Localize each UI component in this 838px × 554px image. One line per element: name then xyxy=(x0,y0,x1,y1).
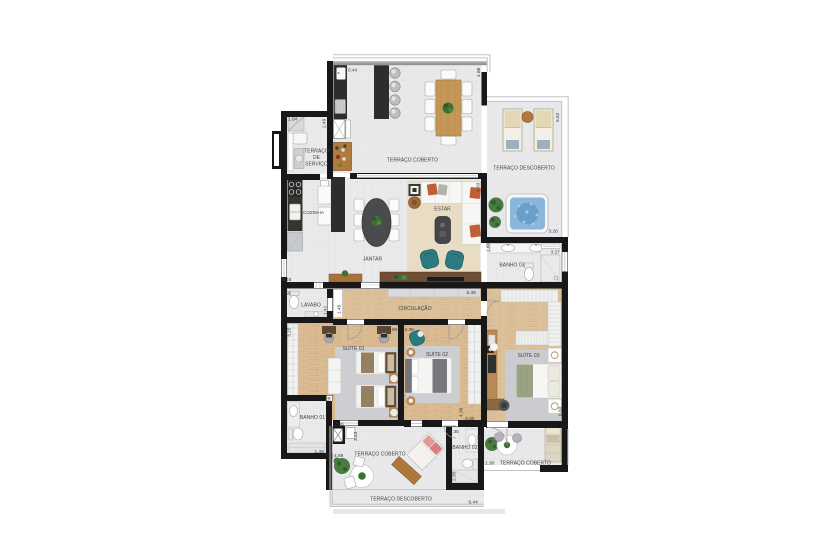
svg-text:CIRCULAÇÃO: CIRCULAÇÃO xyxy=(398,305,431,312)
svg-text:JANTAR: JANTAR xyxy=(363,257,383,263)
svg-text:BANHO 03: BANHO 03 xyxy=(499,263,524,269)
svg-text:6.60: 6.60 xyxy=(558,406,564,416)
svg-text:3.23: 3.23 xyxy=(353,431,359,441)
svg-text:1.45: 1.45 xyxy=(337,304,343,314)
svg-text:1.84: 1.84 xyxy=(288,117,298,123)
svg-text:4.88: 4.88 xyxy=(334,453,344,459)
svg-text:COZINHA: COZINHA xyxy=(303,210,325,215)
svg-text:BANHO 01: BANHO 01 xyxy=(300,415,325,421)
svg-text:TERRAÇO: TERRAÇO xyxy=(304,149,329,155)
svg-text:SERVIÇO: SERVIÇO xyxy=(305,162,328,168)
svg-text:SUÍTE 03: SUÍTE 03 xyxy=(517,352,539,359)
svg-text:SUÍTE 02: SUÍTE 02 xyxy=(426,351,448,358)
svg-text:2.96: 2.96 xyxy=(335,422,345,428)
svg-text:1.92: 1.92 xyxy=(282,291,292,297)
svg-text:1.41: 1.41 xyxy=(323,305,329,315)
svg-text:4.90: 4.90 xyxy=(388,327,398,333)
svg-text:4.88: 4.88 xyxy=(476,67,482,77)
svg-text:2.88: 2.88 xyxy=(327,396,333,406)
svg-text:TERRAÇO COBERTO: TERRAÇO COBERTO xyxy=(500,461,551,467)
svg-text:0.44: 0.44 xyxy=(348,68,358,74)
svg-text:TERRAÇO DESCOBERTO: TERRAÇO DESCOBERTO xyxy=(493,166,555,172)
svg-text:2.30: 2.30 xyxy=(452,471,458,481)
svg-text:2.49: 2.49 xyxy=(322,118,328,128)
svg-text:6.39: 6.39 xyxy=(467,290,477,296)
svg-text:8.48: 8.48 xyxy=(282,277,292,283)
svg-text:3.15: 3.15 xyxy=(287,327,293,337)
svg-text:TERRAÇO COBERTO: TERRAÇO COBERTO xyxy=(387,158,438,164)
svg-text:DE: DE xyxy=(313,155,321,161)
svg-text:4.63: 4.63 xyxy=(476,182,482,192)
svg-text:TERRAÇO COBERTO: TERRAÇO COBERTO xyxy=(354,452,405,458)
svg-text:4.39: 4.39 xyxy=(459,407,465,417)
svg-text:5.62: 5.62 xyxy=(555,112,561,122)
svg-text:1.49: 1.49 xyxy=(315,449,325,455)
svg-text:TERRAÇO DESCOBERTO: TERRAÇO DESCOBERTO xyxy=(370,497,432,503)
svg-text:1.53: 1.53 xyxy=(477,434,483,444)
svg-text:ESTAR: ESTAR xyxy=(434,207,451,213)
svg-text:SUÍTE 01: SUÍTE 01 xyxy=(342,345,364,352)
svg-text:3.27: 3.27 xyxy=(551,250,561,256)
svg-text:3.26: 3.26 xyxy=(549,229,559,235)
svg-text:1.30: 1.30 xyxy=(485,461,495,467)
svg-text:1.80: 1.80 xyxy=(486,242,492,252)
svg-text:LAVABO: LAVABO xyxy=(301,303,321,309)
svg-text:6.44: 6.44 xyxy=(469,500,479,506)
svg-text:1.35: 1.35 xyxy=(450,429,460,435)
svg-text:3.35: 3.35 xyxy=(405,327,415,333)
svg-text:BANHO 02: BANHO 02 xyxy=(452,445,477,451)
svg-text:3.30: 3.30 xyxy=(465,416,475,422)
